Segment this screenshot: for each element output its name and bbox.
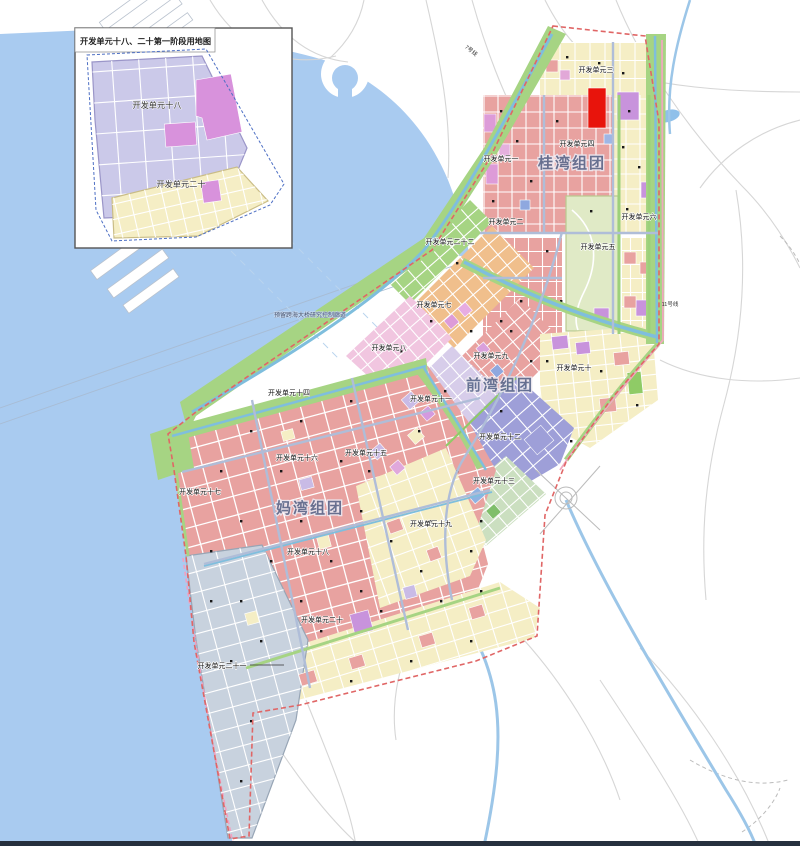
unit-label-13: 开发单元十三	[473, 476, 515, 485]
unit-label-17: 开发单元十七	[179, 487, 221, 496]
parcel-code-mark	[320, 630, 322, 632]
parcel-code-mark	[480, 520, 482, 522]
unit-label-15: 开发单元十五	[345, 448, 387, 457]
unit-label-11: 开发单元十一	[410, 394, 452, 403]
unit-label-21: 开发单元二十一	[198, 661, 247, 670]
parcel-patch	[613, 351, 629, 365]
parcel-code-mark	[300, 420, 302, 422]
unit-label-10: 开发单元十	[557, 363, 592, 372]
parcel-patch	[624, 296, 636, 308]
parcel-code-mark	[444, 390, 446, 392]
parcel-code-mark	[340, 460, 342, 462]
contour-dashes	[690, 236, 800, 832]
highway-interchange	[536, 466, 600, 534]
parcel-code-mark	[470, 330, 472, 332]
parcel-code-mark	[280, 470, 282, 472]
parcel-code-mark	[440, 600, 442, 602]
parcel-patch	[624, 252, 636, 264]
parcel-code-mark	[390, 540, 392, 542]
bridge-corridor-note: 预留跨海大桥研究控制廊道	[274, 311, 346, 319]
parcel-code-mark	[510, 330, 512, 332]
parcel-code-mark	[470, 640, 472, 642]
map-bottom-frame	[0, 841, 800, 846]
parcel-code-mark	[590, 210, 592, 212]
parcel-patch	[575, 341, 590, 354]
map-canvas: 桂湾组团 前湾组团 妈湾组团 开发单元一 开发单元二 开发单元三 开发单元四 开…	[0, 0, 800, 846]
river-southeast	[566, 500, 756, 846]
parcel-code-mark	[600, 370, 602, 372]
parcel-code-mark	[622, 72, 624, 74]
parcel-patch	[403, 585, 418, 600]
unit-label-5: 开发单元五	[581, 242, 616, 251]
parcel-patch	[551, 335, 568, 350]
inset-unit20-label: 开发单元二十	[156, 179, 205, 189]
unit-label-16: 开发单元十六	[276, 453, 318, 462]
parcel-code-mark	[430, 320, 432, 322]
unit-label-19: 开发单元十九	[410, 519, 452, 528]
parcel-code-mark	[546, 250, 548, 252]
parcel-code-mark	[626, 208, 628, 210]
parcel-code-mark	[300, 520, 302, 522]
parcel-code-mark	[360, 510, 362, 512]
parcel-code-mark	[380, 610, 382, 612]
parcel-code-mark	[500, 410, 502, 412]
inset-unit18-label: 开发单元十八	[132, 100, 181, 110]
parcel-code-mark	[240, 520, 242, 522]
parcel-code-mark	[330, 560, 332, 562]
parcel-code-mark	[220, 470, 222, 472]
unit-label-8: 开发单元八	[372, 343, 407, 352]
unit-label-18: 开发单元十八	[287, 547, 329, 556]
unit-label-22: 开发单元二十二	[426, 237, 475, 246]
parcel-code-mark	[470, 550, 472, 552]
parcel-code-mark	[420, 570, 422, 572]
parcel-code-mark	[210, 550, 212, 552]
cluster-label-guiwan: 桂湾组团	[537, 154, 606, 172]
unit-label-9: 开发单元九	[474, 351, 509, 360]
unit-label-6: 开发单元六	[622, 212, 657, 221]
inset-title: 开发单元十八、二十第一阶段用地图	[80, 36, 211, 46]
unit-label-7: 开发单元七	[417, 300, 452, 309]
planning-map: 桂湾组团 前湾组团 妈湾组团 开发单元一 开发单元二 开发单元三 开发单元四 开…	[0, 0, 800, 846]
parcel-code-mark	[546, 360, 548, 362]
parcel-code-mark	[636, 404, 638, 406]
unit-label-3: 开发单元三	[579, 65, 614, 74]
parcel-code-mark	[456, 262, 458, 264]
unit-label-2: 开发单元二	[489, 217, 524, 226]
parcel-code-mark	[500, 320, 502, 322]
parcel-code-mark	[570, 440, 572, 442]
parcel-code-mark	[480, 590, 482, 592]
parcel-code-mark	[240, 780, 242, 782]
parcel-code-mark	[368, 470, 370, 472]
metro11-label: 11号线	[662, 300, 679, 308]
parcel-code-mark	[598, 62, 600, 64]
unit-label-14: 开发单元十四	[268, 388, 310, 397]
parcel-code-mark	[210, 600, 212, 602]
parcel-code-mark	[270, 560, 272, 562]
parcel-code-mark	[418, 430, 420, 432]
cluster-label-qianwan: 前湾组团	[466, 376, 534, 394]
parcel-patch	[560, 70, 570, 80]
unit-label-1: 开发单元一	[484, 154, 519, 163]
parcel-code-mark	[410, 660, 412, 662]
parcel-code-mark	[520, 300, 522, 302]
parcel-code-mark	[628, 110, 630, 112]
parcel-code-mark	[516, 140, 518, 142]
parcel-patch	[520, 200, 530, 210]
parcel-code-mark	[250, 430, 252, 432]
parcel-code-mark	[530, 180, 532, 182]
parcel-code-mark	[350, 680, 352, 682]
parcel-code-mark	[566, 56, 568, 58]
parcel-code-mark	[500, 110, 502, 112]
parcel-code-mark	[492, 200, 494, 202]
parcel-code-mark	[360, 590, 362, 592]
parcel-code-mark	[300, 600, 302, 602]
parcel-code-mark	[530, 360, 532, 362]
cluster-label-mawan: 妈湾组团	[276, 499, 344, 517]
unit-label-12: 开发单元十二	[479, 432, 521, 441]
parcel-code-mark	[556, 120, 558, 122]
parcel-code-mark	[260, 640, 262, 642]
parcel-code-mark	[240, 600, 242, 602]
unit-label-20: 开发单元二十	[301, 615, 343, 624]
parcel-code-mark	[638, 166, 640, 168]
parcel-code-mark	[350, 400, 352, 402]
parcel-code-mark	[622, 146, 624, 148]
parcel-patch	[588, 88, 606, 128]
unit-label-4: 开发单元四	[560, 139, 595, 148]
marina-channel	[338, 86, 352, 112]
metro7-label: 7号线	[463, 43, 479, 58]
